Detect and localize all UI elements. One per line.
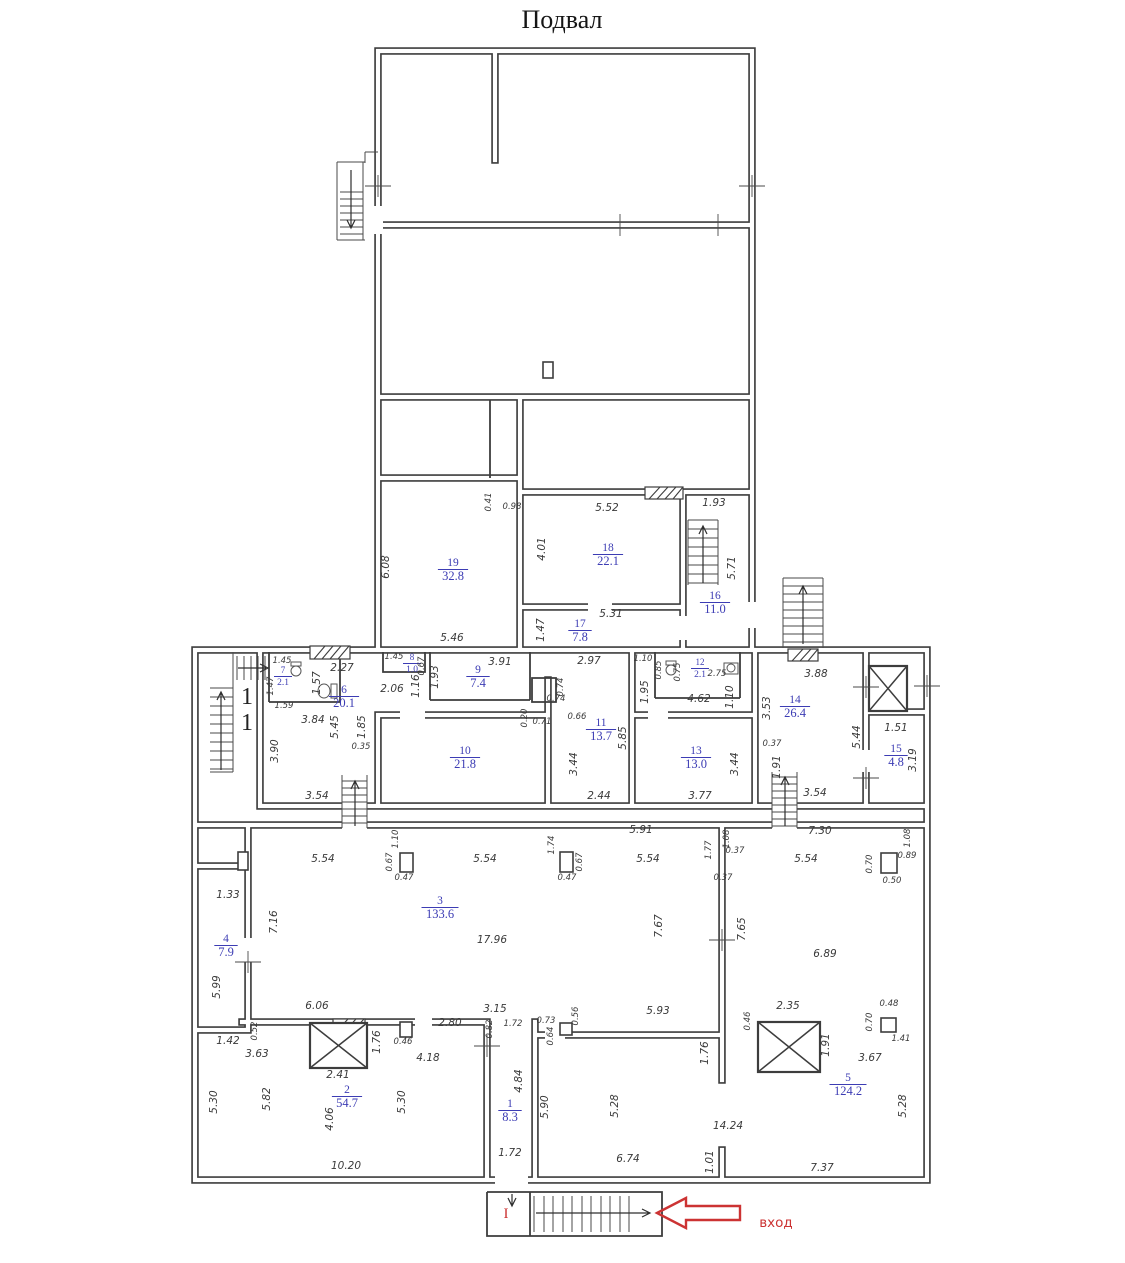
dim-label: 1.08 [903,828,913,848]
room-label: 254.7 [332,1084,362,1110]
dim-label: 5.52 [595,502,619,514]
room-number: 19 [447,557,459,569]
entrance-landing-mark: I [504,1206,509,1222]
dim-label: 1.95 [639,680,651,704]
dim-label: 3.63 [245,1048,268,1060]
room-number: 7 [281,665,286,675]
room-number: 15 [890,743,902,755]
dim-label: 3.90 [269,739,281,763]
dim-label: 4.01 [536,537,548,560]
dim-label: 1.77 [704,840,714,860]
room-number: 3 [437,895,443,907]
dim-label: 0.89 [898,851,917,861]
dim-label: 0.85 [654,661,664,680]
dim-label: 5.46 [440,632,464,644]
dim-label: 3.67 [858,1052,882,1064]
dim-label: 0.66 [568,712,588,722]
dim-label: 0.56 [571,1006,581,1026]
dim-label: 1.47 [535,618,547,642]
dim-label: 5.71 [726,556,738,579]
dim-label: 10.20 [331,1160,361,1172]
dim-label: 5.30 [396,1090,408,1114]
room-label: 1313.0 [681,745,711,771]
dim-label: 5.31 [599,608,622,620]
bathroom-fixtures [291,661,738,698]
dim-label: 6.74 [616,1153,639,1165]
dim-label: 0.41 [484,493,494,512]
dim-label: 0.64 [546,1027,556,1046]
dim-label: 1.33 [216,889,239,901]
room-area: 124.2 [834,1084,862,1098]
dim-label: 1.91 [771,755,783,778]
dim-label: 1.59 [275,701,294,711]
dim-label: 2.27 [330,662,354,674]
dim-label: 4.18 [416,1052,440,1064]
dim-label: 1.76 [371,1030,383,1054]
room-number: 1 [507,1098,513,1110]
dim-label: 1.93 [429,665,441,688]
room-number: 12 [696,657,705,667]
entrance-arrow-icon [657,1198,740,1228]
room-area: 26.4 [784,706,807,720]
room-number: 17 [574,618,586,630]
room-label: 97.4 [466,664,489,690]
room-label: 154.8 [884,743,907,769]
dim-label: 3.44 [568,752,580,775]
room-label: 1426.4 [780,694,810,720]
dim-label: 1.57 [311,671,323,695]
dim-label: 7.16 [268,910,280,934]
room-area: 2.1 [277,678,289,688]
dim-label: 5.54 [473,853,496,865]
dim-label: 3.44 [729,752,741,775]
room-label: 5124.2 [830,1072,867,1098]
dim-label: 3.15 [483,1003,507,1015]
room-area: 20.1 [333,696,355,710]
dim-label: 5.54 [311,853,334,865]
room-area: 21.8 [454,757,476,771]
dim-label: 5.93 [646,1005,669,1017]
dim-label: 2.75 [708,669,727,679]
dim-label: 17.96 [477,934,507,946]
dim-label: 0.74 [547,694,566,704]
dim-label: 1.85 [356,715,368,739]
dim-label: 4.84 [513,1069,525,1092]
dim-label: 0.37 [763,739,783,749]
room-number: 2 [344,1084,350,1096]
stair-floor-marks: 11 [241,684,253,736]
dim-label: 7.65 [736,917,748,941]
dim-label: 2.06 [380,683,404,695]
dim-label: 0.67 [417,656,427,676]
room-area: 2.1 [694,670,706,680]
room-number: 9 [475,664,481,676]
dim-label: 4.06 [324,1107,336,1131]
dim-label: 0.71 [533,717,552,727]
room-label: 3133.6 [422,895,459,921]
dim-label: 5.99 [211,975,223,999]
dim-label: 14.24 [713,1120,743,1132]
dim-label: 2.41 [326,1069,349,1081]
dim-label: 0.98 [503,502,523,512]
dim-label: 2.80 [438,1017,462,1029]
room-area: 32.8 [442,569,464,583]
room-number: 4 [223,933,229,945]
dim-label: 5.54 [636,853,659,865]
dim-label: 5.28 [609,1094,621,1118]
room-area: 13.7 [590,729,612,743]
room-number: 5 [845,1072,851,1084]
room-label: 620.1 [329,684,359,710]
floor-plan-canvas: I вход 11 1932.81822.1177.81611.081.072.… [0,0,1125,1263]
dim-label: 7.67 [653,914,665,938]
room-label: 122.1 [691,657,709,680]
dim-label: 0.46 [743,1011,753,1031]
dim-label: 0.35 [352,742,371,752]
room-area: 22.1 [597,554,619,568]
dim-label: 0.50 [883,876,902,886]
room-number: 6 [341,684,347,696]
dim-label: 5.28 [897,1094,909,1118]
dim-label: 3.19 [907,748,919,772]
dim-label: 6.06 [305,1000,329,1012]
dim-label: 7.37 [810,1162,834,1174]
dim-label: 1.72 [498,1147,522,1159]
room-label: 1611.0 [700,590,730,616]
dim-label: 2.97 [577,655,601,667]
room-number: 11 [595,717,606,729]
plan-title: Подвал [522,5,603,34]
dim-label: 3.91 [488,656,511,668]
dim-label: 5.30 [208,1090,220,1114]
dim-label: 1.42 [216,1035,240,1047]
room-area: 133.6 [426,907,454,921]
room-label: 1932.8 [438,557,468,583]
dim-label: 0.47 [558,873,578,883]
room-area: 7.8 [572,630,588,644]
room-number: 10 [459,745,471,757]
dim-label: 1.10 [391,830,401,849]
dim-label: 1.41 [892,1034,911,1044]
dim-label: 1.10 [724,685,736,709]
dim-label: 1.16 [410,674,422,698]
dim-label: 0.46 [394,1037,414,1047]
dim-label: 3.54 [803,787,826,799]
dim-label: 0.75 [673,663,683,682]
room-area: 13.0 [685,757,707,771]
dim-label: 5.90 [539,1095,551,1119]
axis-ticks [235,175,940,1057]
dim-label: 1.45 [273,656,292,666]
dim-label: 3.84 [301,714,324,726]
dim-label: 0.37 [714,873,734,883]
dim-label: 0.47 [395,873,415,883]
room-area: 8.3 [502,1110,518,1124]
dim-label: 5.91 [629,824,652,836]
dim-label: 0.48 [880,999,900,1009]
dim-label: 7.30 [808,825,832,837]
room-number: 18 [602,542,614,554]
room-number: 14 [789,694,801,706]
room-label: 72.1 [274,665,292,688]
dim-label: 2.44 [587,790,610,802]
dim-label: 0.67 [385,852,395,872]
dim-label: 1.74 [547,836,557,855]
entrance-label: вход [759,1215,793,1231]
room-label: 177.8 [568,618,591,644]
dim-label: 1.51 [884,722,907,734]
dim-label: 1.76 [699,1041,711,1065]
dim-label: 0.67 [575,852,585,872]
stairwell-floor-mark: 1 [241,710,253,736]
dim-label: 3.53 [761,696,773,719]
room-label: 18.3 [498,1098,521,1124]
room-label: 1822.1 [593,542,623,568]
dim-label: 3.77 [688,790,712,802]
dim-label: 6.08 [380,555,392,579]
room-area: 11.0 [704,602,725,616]
stairwell-floor-mark: 1 [241,684,253,710]
room-number: 8 [410,652,415,662]
room-label: 47.9 [214,933,237,959]
dim-label: 5.82 [261,1087,273,1111]
dim-label: 1.91 [820,1033,832,1056]
dim-label: 5.54 [794,853,817,865]
dim-label: 0.70 [865,1013,875,1032]
room-area: 54.7 [336,1096,358,1110]
dim-label: 6.89 [813,948,837,960]
dim-label: 2.35 [776,1000,800,1012]
dim-label: 0.52 [250,1022,260,1041]
room-number: 16 [709,590,721,602]
sink-icon [291,666,301,676]
room-area: 7.9 [218,945,234,959]
dim-label: 1.93 [702,497,725,509]
dim-label: 1.01 [704,1150,716,1173]
dim-label: 1.08 [722,829,732,849]
dim-label: 0.82 [485,1020,495,1039]
dim-label: 4.62 [687,693,711,705]
dim-label: 1.72 [504,1019,523,1029]
dim-label: 1.45 [385,652,404,662]
room-area: 7.4 [470,676,486,690]
dim-label: 1.47 [266,676,276,696]
room-label: 1113.7 [586,717,616,743]
dim-label: 0.70 [865,855,875,874]
dim-label: 3.54 [305,790,328,802]
dim-label: 5.44 [851,725,863,748]
dim-label: 0.73 [537,1016,556,1026]
room-area: 4.8 [888,755,904,769]
dim-label: 1.10 [634,654,653,664]
dim-label: 3.88 [804,668,828,680]
dim-label: 5.45 [329,715,341,739]
dim-label: 0.20 [520,709,530,728]
dim-label: 5.85 [617,726,629,750]
room-label: 1021.8 [450,745,480,771]
room-number: 13 [690,745,702,757]
floor-plan-page: I вход 11 1932.81822.1177.81611.081.072.… [0,0,1125,1263]
